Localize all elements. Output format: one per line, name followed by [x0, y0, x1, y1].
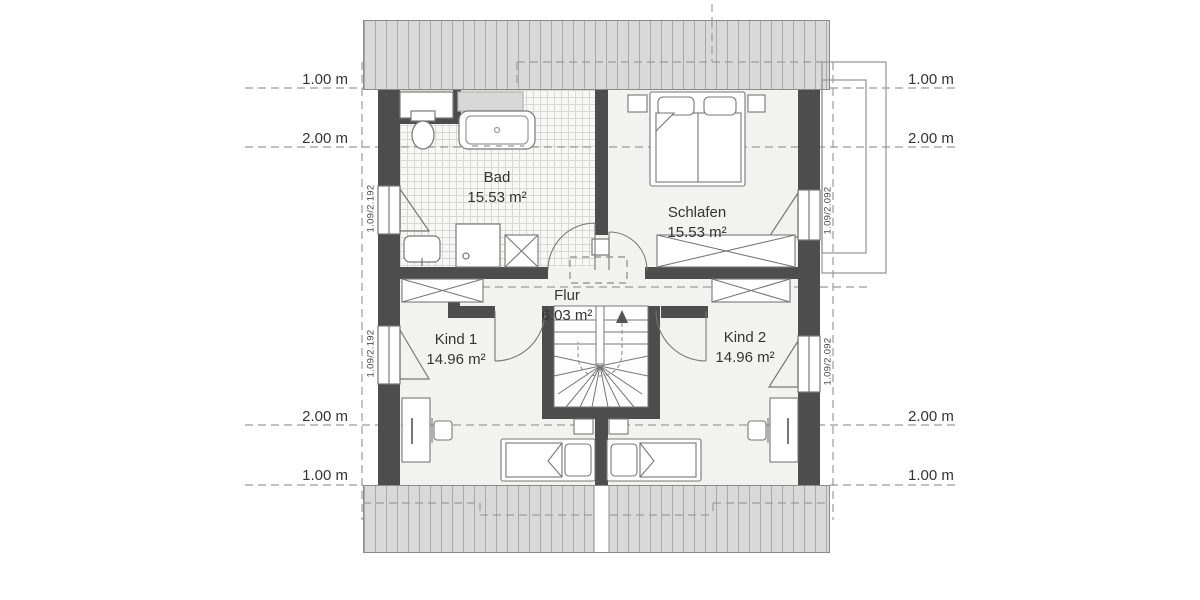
dim-upper-left: 2.00 m — [286, 131, 348, 147]
ceiling-opening-dashed — [570, 257, 627, 283]
wall-stub-left — [448, 306, 495, 318]
door-kind2 — [656, 311, 706, 361]
door-bad — [548, 223, 595, 270]
wall-bad-schlafen — [595, 90, 608, 235]
wall-right-1 — [798, 90, 820, 190]
wall-kind1-kind2 — [595, 419, 608, 485]
room-label-bad: Bad 15.53 m² — [447, 168, 547, 208]
wall-projection-gap — [594, 486, 609, 552]
window-label-left-top: 1.09/2.192 — [366, 172, 377, 246]
sink — [404, 236, 440, 266]
room-name: Bad — [447, 168, 547, 188]
wardrobe-kind2 — [712, 279, 790, 302]
nightstand-left — [628, 95, 647, 112]
bed-kind1 — [501, 439, 595, 481]
wall-stub-right — [661, 306, 708, 318]
wall-right-2 — [798, 240, 820, 336]
floor-plan: Bad 15.53 m² Schlafen 15.53 m² Flur 6.03… — [0, 0, 1200, 600]
dim-top-right: 1.00 m — [908, 72, 954, 88]
dim-upper-right: 2.00 m — [908, 131, 954, 147]
room-name: Schlafen — [647, 203, 747, 223]
wardrobe-kind1 — [402, 279, 483, 302]
room-area: 6.03 m² — [527, 306, 607, 326]
double-bed — [628, 92, 765, 186]
dim-lower-left: 2.00 m — [286, 409, 348, 425]
shower — [456, 224, 500, 267]
wall-schlafen-bottom — [645, 267, 798, 279]
window-label-right-bottom: 1.09/2.092 — [823, 325, 834, 399]
desk-kind1 — [402, 398, 452, 462]
dim-top-left: 1.00 m — [286, 72, 348, 88]
dim-bottom-left: 1.00 m — [286, 468, 348, 484]
wall-left-1 — [378, 90, 400, 186]
room-area: 14.96 m² — [416, 350, 496, 370]
bathtub — [459, 111, 535, 149]
window-label-right-top: 1.09/2.092 — [823, 174, 834, 248]
desk-kind2 — [748, 398, 798, 462]
room-label-flur: Flur 6.03 m² — [527, 286, 607, 326]
shelf-kind1 — [574, 419, 593, 434]
room-area: 14.96 m² — [705, 348, 785, 368]
wall-right-3 — [798, 392, 820, 485]
toilet — [411, 111, 435, 149]
dim-lower-right: 2.00 m — [908, 409, 954, 425]
shelf-kind2 — [609, 419, 628, 434]
room-area: 15.53 m² — [647, 223, 747, 243]
room-name: Kind 1 — [416, 330, 496, 350]
door-schlafen — [609, 232, 647, 270]
window-bad — [378, 186, 429, 234]
balcony-door-schlafen — [769, 190, 820, 240]
room-label-kind1: Kind 1 14.96 m² — [416, 330, 496, 370]
dim-bottom-right: 1.00 m — [908, 468, 954, 484]
bath-counter — [458, 92, 523, 111]
room-name: Kind 2 — [705, 328, 785, 348]
nightstand-right — [748, 95, 765, 112]
room-label-schlafen: Schlafen 15.53 m² — [647, 203, 747, 243]
wall-left-2 — [378, 234, 400, 326]
bed-kind2 — [607, 439, 701, 481]
wardrobe-bad — [505, 235, 538, 267]
stairwell-wall-bottom — [542, 407, 660, 419]
room-area: 15.53 m² — [447, 188, 547, 208]
wall-left-3 — [378, 384, 400, 485]
stairwell-wall-right — [648, 306, 660, 419]
window-label-left-bottom: 1.09/2.192 — [366, 317, 377, 391]
wall-bad-bottom — [400, 267, 548, 279]
room-label-kind2: Kind 2 14.96 m² — [705, 328, 785, 368]
room-name: Flur — [527, 286, 607, 306]
